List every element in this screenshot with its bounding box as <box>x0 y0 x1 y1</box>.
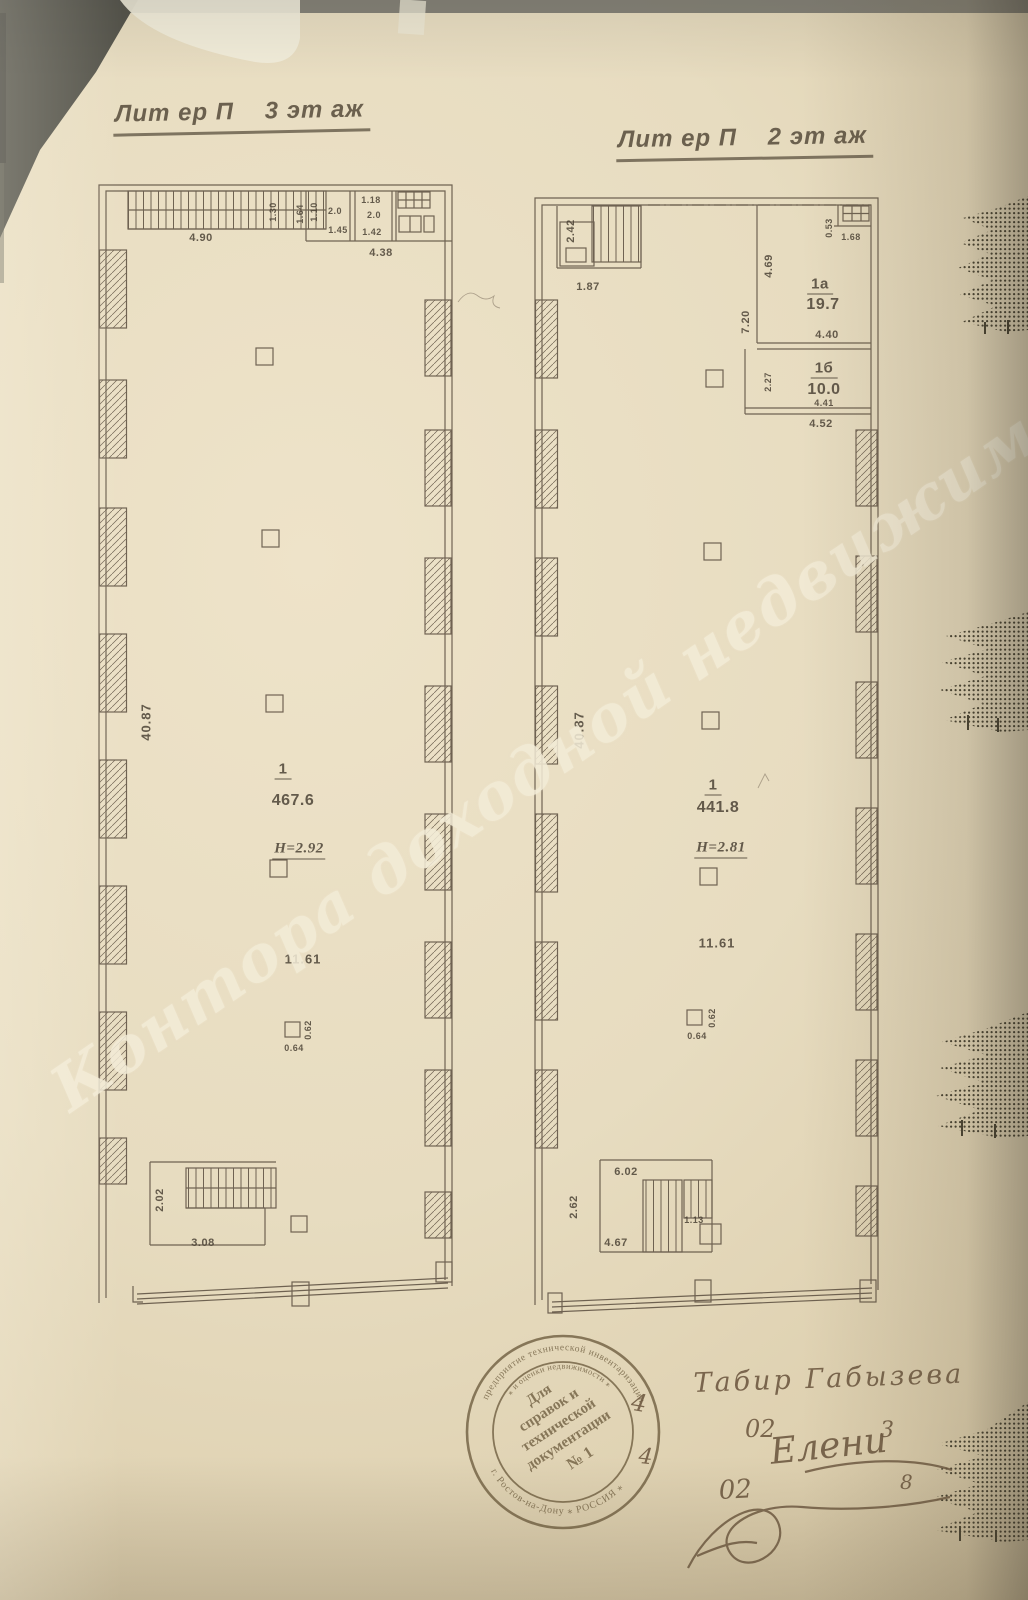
document-page: Лит ер П 3 эт аж Лит ер П 2 эт аж 4.90 1… <box>0 0 1028 1600</box>
handwriting-8: 8 <box>900 1470 913 1494</box>
print-through-blobs <box>932 196 1028 1542</box>
photo-left-edge <box>0 13 6 163</box>
handwriting-mark2: 4 <box>637 1444 654 1470</box>
stamp-arc-bottom: г. Ростов-на-Дону ⁎ РОССИЯ ⁎ <box>488 1467 625 1517</box>
handwriting-02b: 02 <box>718 1474 753 1506</box>
svg-text:⁎ и оценки недвижимости ⁎: ⁎ и оценки недвижимости ⁎ <box>504 1361 614 1397</box>
overlay-art: предприятие технической инвентаризации ⁎… <box>0 0 1028 1600</box>
svg-text:г. Ростов-на-Дону ⁎ РОССИЯ ⁎: г. Ростов-на-Дону ⁎ РОССИЯ ⁎ <box>488 1467 625 1517</box>
page-curl-highlight <box>120 0 300 63</box>
round-stamp: предприятие технической инвентаризации ⁎… <box>467 1336 659 1528</box>
photo-corner <box>0 0 138 238</box>
blob-trunks <box>960 320 1008 1542</box>
stamp-arc-mid: ⁎ и оценки недвижимости ⁎ <box>504 1361 614 1397</box>
